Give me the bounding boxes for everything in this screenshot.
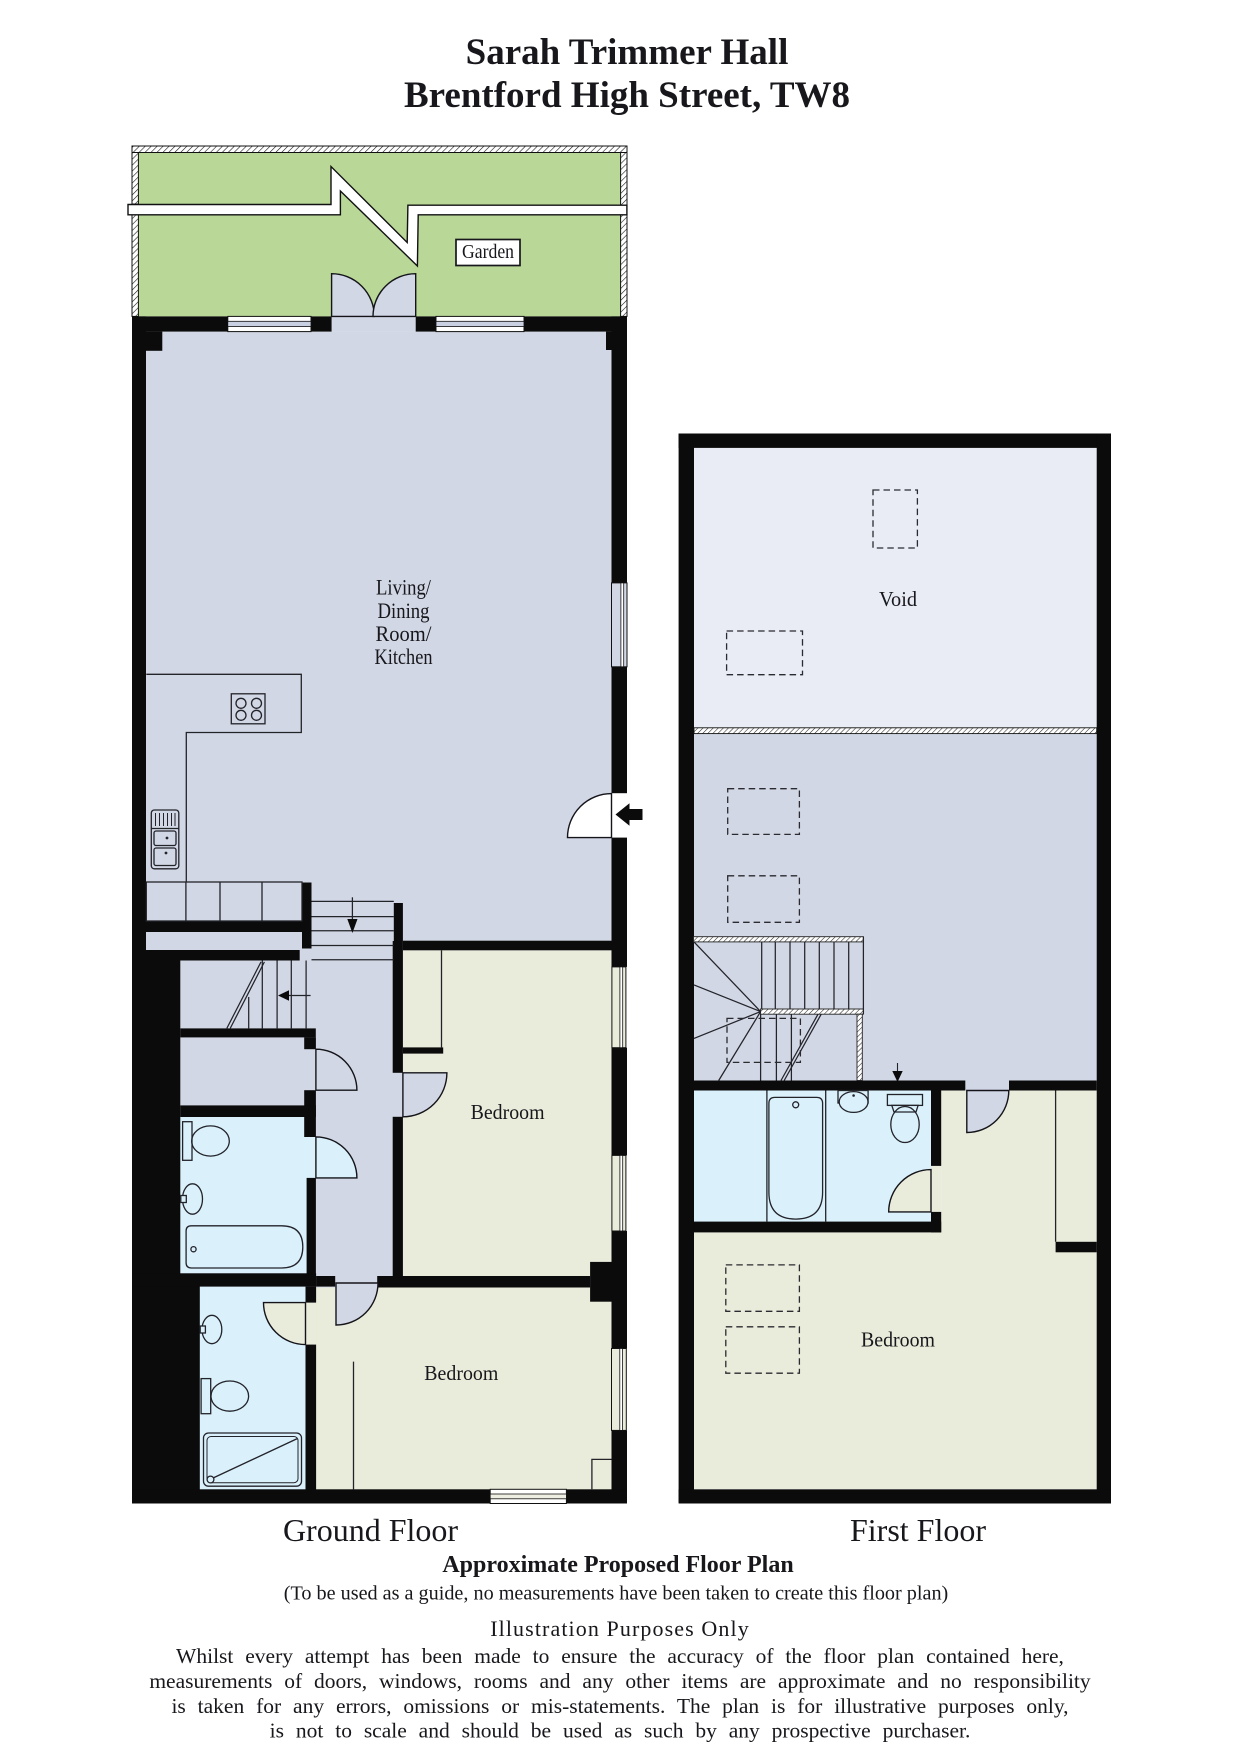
svg-text:Void: Void (879, 587, 917, 611)
svg-text:(To be used as a guide, no mea: (To be used as a guide, no measurements … (284, 1583, 949, 1605)
svg-text:Whilst every attempt has been: Whilst every attempt has been made to en… (176, 1644, 1064, 1668)
svg-text:is not to scale and should be: is not to scale and should be used as su… (270, 1719, 971, 1743)
svg-text:measurements of doors, windows: measurements of doors, windows, rooms an… (149, 1669, 1091, 1693)
svg-text:First Floor: First Floor (850, 1512, 986, 1548)
svg-text:Bedroom: Bedroom (471, 1100, 545, 1124)
svg-text:Approximate Proposed Floor Pla: Approximate Proposed Floor Plan (442, 1552, 793, 1578)
svg-text:Illustration Purposes Only: Illustration Purposes Only (490, 1616, 750, 1641)
svg-text:Bedroom: Bedroom (861, 1328, 935, 1352)
svg-text:Dining: Dining (378, 598, 430, 623)
svg-text:Living/: Living/ (376, 575, 432, 600)
svg-text:Bedroom: Bedroom (424, 1361, 498, 1385)
svg-text:Brentford High Street, TW8: Brentford High Street, TW8 (404, 75, 850, 116)
svg-text:Ground Floor: Ground Floor (283, 1512, 458, 1548)
svg-text:Garden: Garden (462, 241, 514, 263)
svg-text:Room/: Room/ (376, 621, 433, 646)
svg-text:is taken for any errors, omiss: is taken for any errors, omissions or mi… (171, 1694, 1068, 1718)
svg-text:Sarah Trimmer Hall: Sarah Trimmer Hall (466, 32, 789, 73)
svg-text:Kitchen: Kitchen (375, 644, 433, 669)
